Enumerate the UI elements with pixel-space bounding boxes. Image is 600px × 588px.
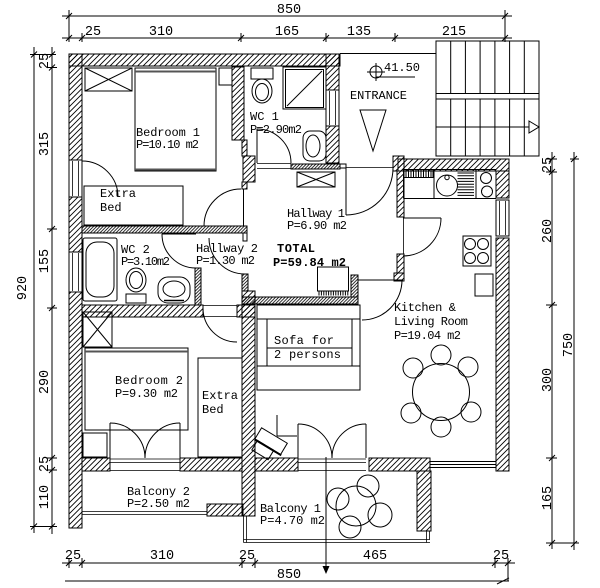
svg-text:25: 25 — [239, 549, 255, 564]
svg-text:Sofa for: Sofa for — [274, 334, 334, 348]
svg-text:850: 850 — [277, 3, 301, 18]
svg-text:P=59.84 m2: P=59.84 m2 — [273, 256, 346, 270]
svg-text:920: 920 — [16, 276, 31, 300]
svg-text:750: 750 — [562, 333, 577, 357]
svg-text:ENTRANCE: ENTRANCE — [350, 89, 407, 103]
svg-text:Living Room: Living Room — [394, 315, 468, 329]
svg-text:Bed: Bed — [100, 201, 122, 215]
svg-text:P=9.30 m2: P=9.30 m2 — [115, 387, 178, 401]
svg-text:TOTAL: TOTAL — [277, 242, 315, 256]
svg-text:Kitchen &: Kitchen & — [394, 301, 456, 315]
svg-text:Extra: Extra — [100, 187, 136, 201]
svg-text:Bedroom 2: Bedroom 2 — [115, 374, 183, 388]
svg-text:290: 290 — [38, 370, 53, 394]
svg-text:P=6.90 m2: P=6.90 m2 — [287, 219, 347, 233]
svg-text:25: 25 — [493, 549, 509, 564]
svg-text:25: 25 — [541, 157, 556, 173]
svg-text:P=10.10 m2: P=10.10 m2 — [136, 138, 199, 152]
svg-text:P=19.04 m2: P=19.04 m2 — [394, 329, 461, 343]
svg-text:165: 165 — [275, 25, 299, 40]
svg-text:25: 25 — [38, 456, 53, 472]
svg-text:P=3.10m2: P=3.10m2 — [121, 255, 170, 269]
svg-text:310: 310 — [149, 25, 173, 40]
svg-text:165: 165 — [541, 486, 556, 510]
svg-text:465: 465 — [363, 549, 387, 564]
svg-text:315: 315 — [38, 132, 53, 156]
svg-text:2 persons: 2 persons — [274, 348, 341, 362]
svg-text:135: 135 — [347, 25, 371, 40]
svg-text:300: 300 — [541, 368, 556, 392]
svg-text:215: 215 — [442, 25, 466, 40]
svg-text:WC 1: WC 1 — [250, 110, 279, 124]
svg-text:41.50: 41.50 — [384, 61, 420, 75]
svg-text:Bed: Bed — [202, 403, 224, 417]
svg-text:25: 25 — [65, 549, 81, 564]
svg-text:P=4.70 m2: P=4.70 m2 — [260, 514, 325, 528]
svg-text:110: 110 — [38, 485, 53, 509]
svg-text:P=2.90m2: P=2.90m2 — [250, 123, 302, 137]
svg-text:25: 25 — [85, 25, 101, 40]
svg-text:310: 310 — [150, 549, 174, 564]
svg-text:260: 260 — [541, 219, 556, 243]
svg-text:P=2.50 m2: P=2.50 m2 — [127, 497, 190, 511]
svg-text:850: 850 — [277, 568, 301, 583]
svg-text:Extra: Extra — [202, 389, 238, 403]
svg-text:155: 155 — [38, 249, 53, 273]
svg-text:25: 25 — [38, 53, 53, 69]
svg-text:P=1.30 m2: P=1.30 m2 — [196, 254, 255, 268]
